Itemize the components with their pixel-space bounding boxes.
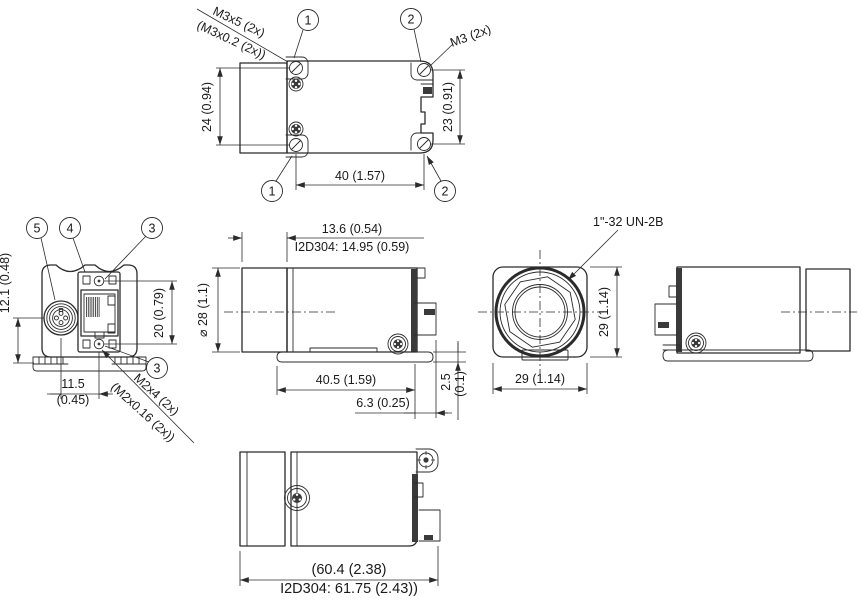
rear-view: 12.1 (0.48) 20 (0.79) 11.5 (0.45) M2x4 (… bbox=[0, 218, 194, 445]
dim-63: 6.3 (0.25) bbox=[356, 396, 410, 410]
callout-4: 4 bbox=[60, 218, 81, 239]
label-lens-thread: 1"-32 UN-2B bbox=[593, 215, 663, 229]
right-view-base-plate bbox=[663, 350, 813, 361]
svg-text:2: 2 bbox=[442, 185, 449, 199]
dim-01: (0.1) bbox=[453, 371, 467, 397]
bottom-view-lug-hole bbox=[417, 451, 435, 469]
bottom-view-tab-slot bbox=[424, 535, 433, 540]
right-view-tab-slot bbox=[658, 322, 669, 328]
svg-text:3: 3 bbox=[154, 362, 161, 376]
right-view-lens-barrel bbox=[806, 269, 850, 351]
callout-3-bottom: 3 bbox=[147, 358, 168, 379]
bottom-view-rear-features bbox=[415, 449, 440, 541]
rear-view-mounting-base bbox=[33, 357, 146, 371]
dim-045: (0.45) bbox=[57, 393, 90, 407]
dim-40: 40 (1.57) bbox=[335, 169, 385, 183]
top-view-lens-barrel bbox=[240, 63, 287, 153]
svg-text:2: 2 bbox=[408, 13, 415, 27]
top-view-torx-screws bbox=[289, 77, 303, 136]
callout-1-top: 1 bbox=[298, 10, 319, 31]
callout-3-top: 3 bbox=[142, 218, 163, 239]
dim-604: (60.4 (2.38) bbox=[312, 562, 387, 578]
svg-text:5: 5 bbox=[34, 222, 41, 236]
right-view-front-band bbox=[676, 268, 682, 352]
side-view-rear-features bbox=[415, 268, 436, 335]
dimensional-drawing-page: 24 (0.94) 23 (0.91) 40 (1.57) M3x5 (2x) … bbox=[0, 0, 858, 600]
dim-405: 40.5 (1.59) bbox=[316, 373, 376, 387]
dim-24: 24 (0.94) bbox=[200, 82, 214, 132]
m12-connector bbox=[44, 301, 78, 335]
side-view: 13.6 (0.54) I2D304: 14.95 (0.59) ⌀ 28 (1… bbox=[196, 222, 467, 420]
svg-text:1: 1 bbox=[305, 14, 312, 28]
thread-leader-line bbox=[568, 230, 618, 280]
front-view: 1"-32 UN-2B 29 (1.14) 29 (1.14) bbox=[478, 215, 663, 394]
side-view-rear-band bbox=[411, 269, 417, 352]
dim-115: 11.5 bbox=[61, 377, 84, 391]
dim-29v: 29 (1.14) bbox=[597, 287, 611, 337]
label-m3: M3 (2x) bbox=[448, 22, 493, 50]
camera-dimensional-drawing: 24 (0.94) 23 (0.91) 40 (1.57) M3x5 (2x) … bbox=[0, 0, 858, 600]
callout-2-bottom: 2 bbox=[435, 181, 456, 202]
side-view-lens-barrel bbox=[242, 268, 287, 352]
bottom-view-rear-band bbox=[412, 474, 418, 542]
dim-121: 12.1 (0.48) bbox=[0, 253, 12, 313]
svg-text:4: 4 bbox=[67, 222, 74, 236]
side-view-base-plate bbox=[277, 348, 433, 362]
dim-136: 13.6 (0.54) bbox=[322, 222, 382, 236]
ethernet-port bbox=[78, 272, 120, 352]
svg-text:1: 1 bbox=[269, 185, 276, 199]
side-view-extension-lines bbox=[212, 232, 466, 419]
top-view-mount-screws bbox=[290, 62, 431, 152]
bottom-view: (60.4 (2.38) I2D304: 61.75 (2.43)) bbox=[240, 449, 440, 597]
callout-2-top: 2 bbox=[401, 9, 422, 30]
dim-d28: ⌀ 28 (1.1) bbox=[196, 283, 210, 337]
right-side-view bbox=[655, 267, 857, 361]
callout-1-bottom: 1 bbox=[262, 181, 283, 202]
dim-29h: 29 (1.14) bbox=[515, 372, 565, 386]
dim-25: 2.5 bbox=[439, 373, 453, 390]
callout-5: 5 bbox=[27, 218, 48, 239]
side-view-tab-slot bbox=[424, 309, 435, 315]
dim-1495: I2D304: 14.95 (0.59) bbox=[295, 240, 410, 254]
dim-20: 20 (0.79) bbox=[152, 288, 166, 338]
dim-6175: I2D304: 61.75 (2.43)) bbox=[280, 581, 418, 597]
top-view-corner-bosses bbox=[286, 57, 433, 157]
top-view-connector-slot bbox=[423, 87, 432, 94]
dim-23: 23 (0.91) bbox=[441, 82, 455, 132]
top-view: 24 (0.94) 23 (0.91) 40 (1.57) M3x5 (2x) … bbox=[195, 4, 493, 201]
svg-text:3: 3 bbox=[149, 222, 156, 236]
side-view-torx-screw bbox=[388, 334, 408, 354]
